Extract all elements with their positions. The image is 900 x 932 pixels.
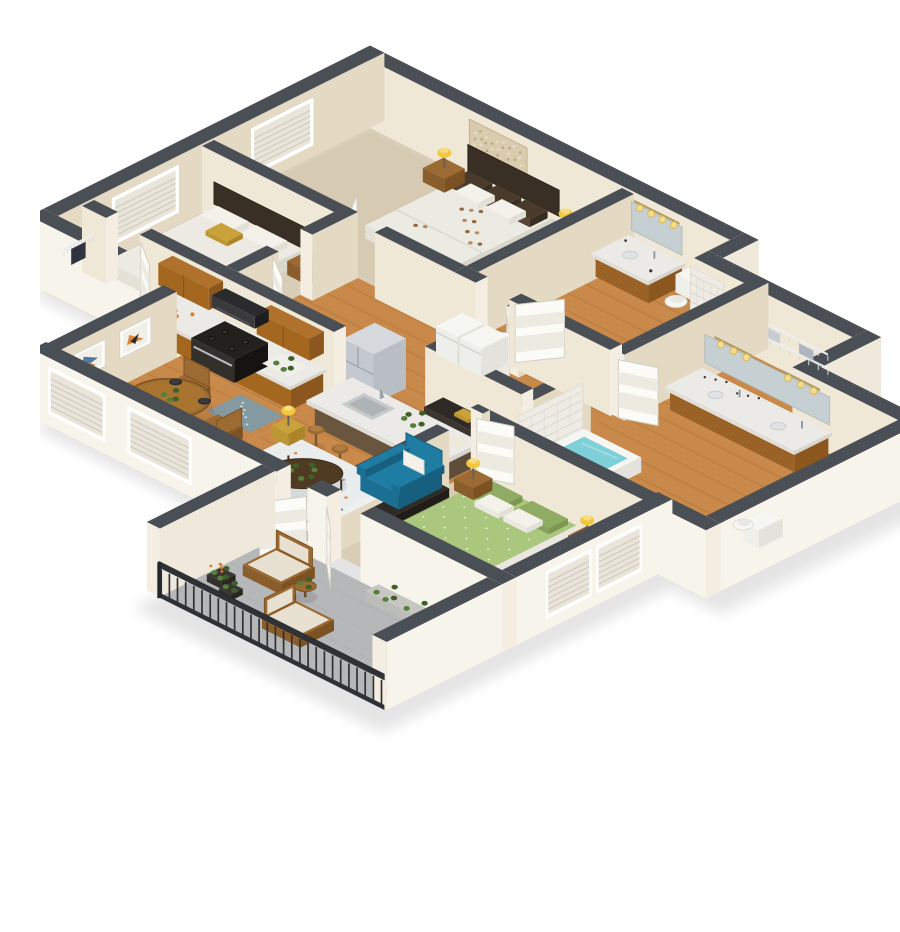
floor-plan-3d-render: 3D isometric apartment floor plan render… bbox=[40, 16, 900, 916]
door-bathroom-2 bbox=[618, 360, 658, 426]
door-bathroom-1 bbox=[515, 299, 564, 362]
floor-plan-canvas bbox=[40, 16, 900, 916]
